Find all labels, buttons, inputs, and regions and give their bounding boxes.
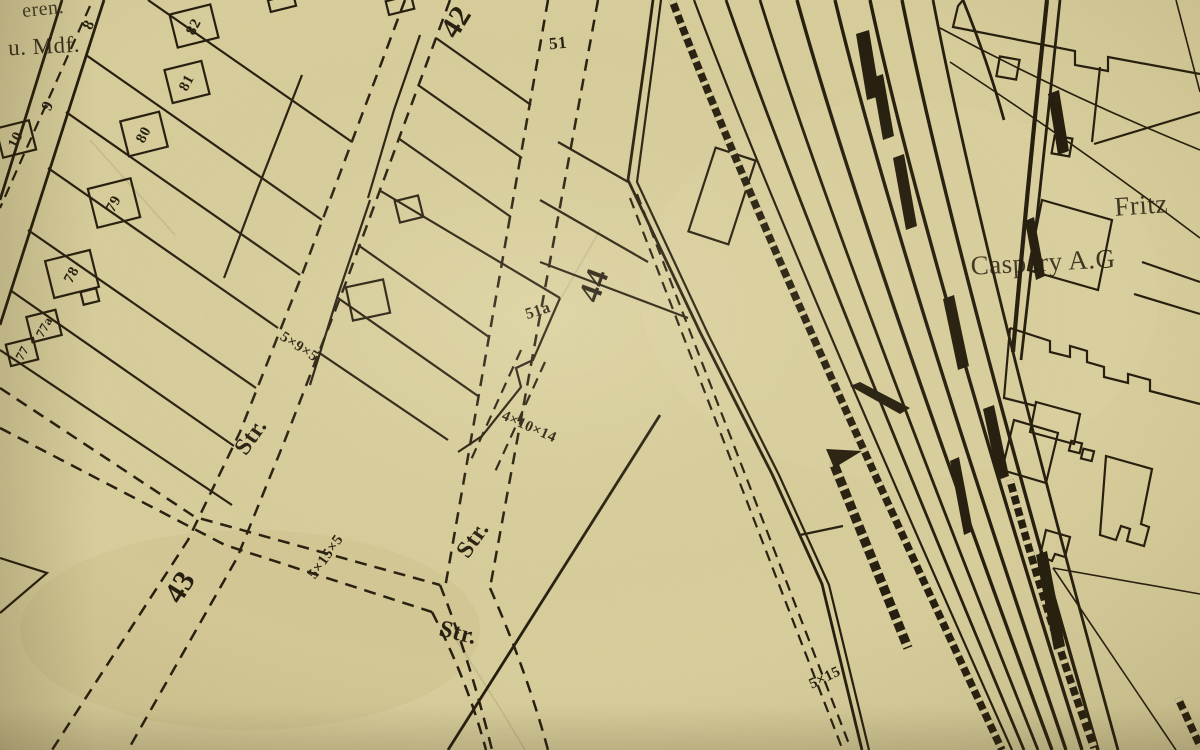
paper-grain	[0, 0, 1200, 750]
city-map-canvas: eren. u. Mdf. 8 9 10 82 81 80 79 78 77a …	[0, 0, 1200, 750]
map-scan: eren. u. Mdf. 8 9 10 82 81 80 79 78 77a …	[0, 0, 1200, 750]
